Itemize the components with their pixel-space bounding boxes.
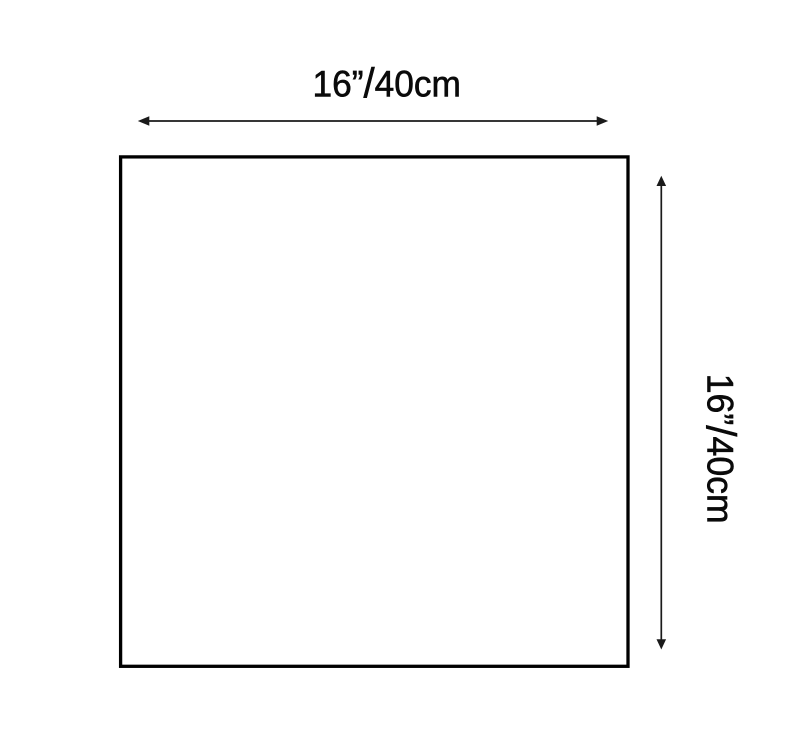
svg-text:16”/40cm: 16”/40cm [698, 374, 745, 524]
svg-text:16”/40cm: 16”/40cm [312, 60, 461, 107]
